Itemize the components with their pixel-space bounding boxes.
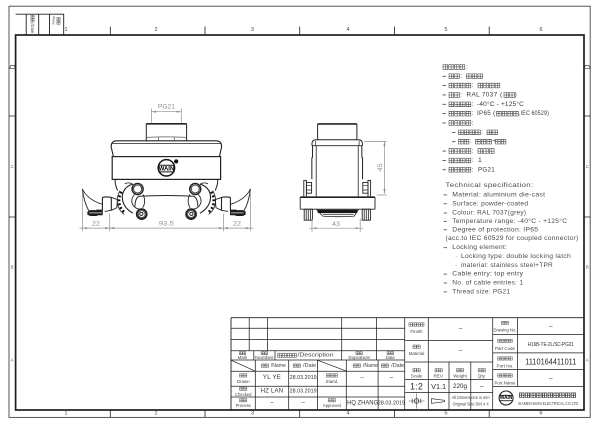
- svg-text:2: 2: [155, 27, 158, 33]
- svg-text:No. of cable entries: 1: No. of cable entries: 1: [452, 280, 523, 287]
- svg-text:Original Size DIN # 4: Original Size DIN # 4: [453, 402, 490, 407]
- svg-text:H16B-TE-2L/SC-PG21: H16B-TE-2L/SC-PG21: [528, 342, 574, 348]
- svg-text::: :: [472, 101, 474, 108]
- svg-text:WAIN: WAIN: [159, 165, 175, 172]
- svg-text:/Date: /Date: [303, 363, 316, 369]
- svg-text:-40°C - +125°C: -40°C - +125°C: [477, 100, 524, 108]
- svg-text:Colour: RAL 7037(grey): Colour: RAL 7037(grey): [452, 210, 526, 217]
- svg-text:/Name: /Name: [363, 363, 378, 369]
- svg-text:28.03.2019: 28.03.2019: [290, 375, 317, 381]
- svg-text:): ): [515, 91, 517, 98]
- svg-text:Weight: Weight: [453, 373, 467, 378]
- svg-text:5: 5: [445, 27, 448, 33]
- svg-text:Temperature range: -40°C - +: Temperature range: -40°C - +125°C: [452, 217, 567, 225]
- svg-text:(acc.to IEC 60529 for coupled: (acc.to IEC 60529 for coupled connector): [446, 235, 579, 242]
- svg-text:–: –: [480, 383, 484, 390]
- svg-text:/Name: /Name: [271, 363, 286, 369]
- svg-text:Scale: Scale: [411, 373, 423, 378]
- svg-text:V1.1: V1.1: [431, 382, 446, 391]
- svg-text:Drawing No.: Drawing No.: [494, 328, 517, 333]
- svg-text:4: 4: [347, 27, 350, 33]
- svg-text:220g: 220g: [453, 383, 467, 390]
- svg-text:2: 2: [155, 411, 158, 417]
- svg-text:Qty.: Qty.: [478, 373, 486, 378]
- svg-text:WAIN: WAIN: [500, 395, 513, 401]
- svg-text:–: –: [459, 348, 463, 355]
- svg-text:All Dimensions in mm: All Dimensions in mm: [452, 395, 490, 400]
- svg-text::: :: [460, 73, 462, 80]
- svg-text:Part Code: Part Code: [495, 346, 516, 351]
- svg-text:C: C: [586, 164, 589, 169]
- svg-text:93.5: 93.5: [159, 221, 175, 228]
- svg-text:Material: aluminium die-cast: Material: aluminium die-cast: [452, 191, 545, 198]
- svg-text:5: 5: [445, 411, 448, 417]
- svg-text::: :: [472, 110, 474, 117]
- svg-text:–: –: [459, 326, 463, 333]
- svg-text:REV.: REV.: [433, 373, 443, 378]
- svg-text:C: C: [11, 164, 14, 169]
- svg-text:1:2: 1:2: [410, 381, 423, 391]
- svg-text:Mark: Mark: [238, 355, 248, 360]
- svg-text:45: 45: [377, 163, 384, 172]
- svg-text:6: 6: [540, 411, 543, 417]
- svg-text::: :: [472, 148, 474, 155]
- svg-text:Date: Date: [386, 355, 396, 360]
- svg-text:Degree of protection: IP65: Degree of protection: IP65: [452, 226, 538, 233]
- svg-text::: :: [481, 129, 483, 136]
- svg-text:Number: Number: [255, 355, 275, 360]
- svg-text:28.03.2019: 28.03.2019: [378, 401, 405, 407]
- svg-text:Surface: powder-coated: Surface: powder-coated: [452, 200, 528, 207]
- svg-text:Checked: Checked: [235, 392, 252, 397]
- svg-text:1110164411011: 1110164411011: [525, 357, 576, 366]
- svg-text:·: ·: [455, 262, 457, 269]
- svg-text:1: 1: [65, 411, 68, 417]
- svg-text:Technical specification:: Technical specification:: [446, 182, 534, 189]
- svg-text:43: 43: [332, 221, 341, 228]
- svg-text:Material: Material: [409, 351, 425, 356]
- svg-text:Locking element:: Locking element:: [452, 244, 507, 251]
- svg-text:22: 22: [233, 221, 242, 228]
- svg-text:Approved: Approved: [323, 403, 342, 408]
- svg-text:/Date: /Date: [30, 23, 35, 34]
- svg-text::: :: [472, 120, 474, 127]
- svg-text:3: 3: [251, 27, 254, 33]
- svg-text:1: 1: [65, 27, 68, 33]
- svg-text:IP65: IP65: [477, 110, 491, 117]
- svg-text:A: A: [586, 358, 589, 363]
- svg-text:Thread size: PG21: Thread size: PG21: [452, 288, 510, 295]
- svg-text::: :: [470, 138, 472, 145]
- svg-text:·: ·: [455, 253, 457, 260]
- svg-text::: :: [472, 166, 474, 173]
- svg-text:Port No.: Port No.: [497, 364, 514, 369]
- svg-text:material: stainless steel+TPR: material: stainless steel+TPR: [461, 262, 553, 269]
- svg-text:B: B: [11, 265, 14, 270]
- svg-text:HQ ZHANG: HQ ZHANG: [347, 401, 378, 407]
- svg-text:3: 3: [251, 411, 254, 417]
- svg-text:–: –: [549, 324, 553, 331]
- svg-text::: :: [460, 91, 462, 98]
- svg-text:–: –: [549, 375, 553, 382]
- svg-text:6: 6: [540, 27, 543, 33]
- svg-text:/Date: /Date: [391, 363, 404, 369]
- svg-text:Finish: Finish: [410, 329, 423, 334]
- svg-text:Port Name: Port Name: [495, 381, 517, 386]
- svg-text:Stand.: Stand.: [326, 379, 339, 384]
- svg-text:Locking type: double locking l: Locking type: double locking latch: [461, 253, 571, 260]
- svg-text:28.03.2019: 28.03.2019: [290, 389, 317, 395]
- svg-text::: :: [466, 63, 468, 70]
- svg-text:Process: Process: [236, 403, 251, 408]
- svg-text:PG21: PG21: [478, 166, 495, 173]
- svg-text:XIAMEN WAIN ELECTRICAL CO.LTD: XIAMEN WAIN ELECTRICAL CO.LTD: [518, 401, 578, 406]
- svg-text:4: 4: [347, 411, 350, 417]
- svg-text:1: 1: [478, 157, 482, 164]
- svg-text:Signature: Signature: [348, 355, 371, 360]
- svg-text:Drawn: Drawn: [237, 379, 250, 384]
- svg-text::: :: [472, 82, 474, 89]
- svg-text:22: 22: [92, 221, 101, 228]
- svg-text:YL YE: YL YE: [263, 375, 281, 381]
- svg-text:/Description: /Description: [298, 352, 334, 358]
- svg-text:HZ LAN: HZ LAN: [261, 389, 284, 395]
- svg-text:,IEC 60529): ,IEC 60529): [519, 110, 549, 117]
- svg-text:Cable entry: top entry: Cable entry: top entry: [452, 271, 523, 278]
- svg-text:PG21: PG21: [158, 104, 175, 111]
- svg-text:A: A: [11, 358, 14, 363]
- svg-text:RAL 7037: RAL 7037: [467, 91, 498, 98]
- svg-text:B: B: [586, 265, 589, 270]
- svg-text::: :: [472, 157, 474, 164]
- svg-text:Rev.: Rev.: [52, 16, 57, 25]
